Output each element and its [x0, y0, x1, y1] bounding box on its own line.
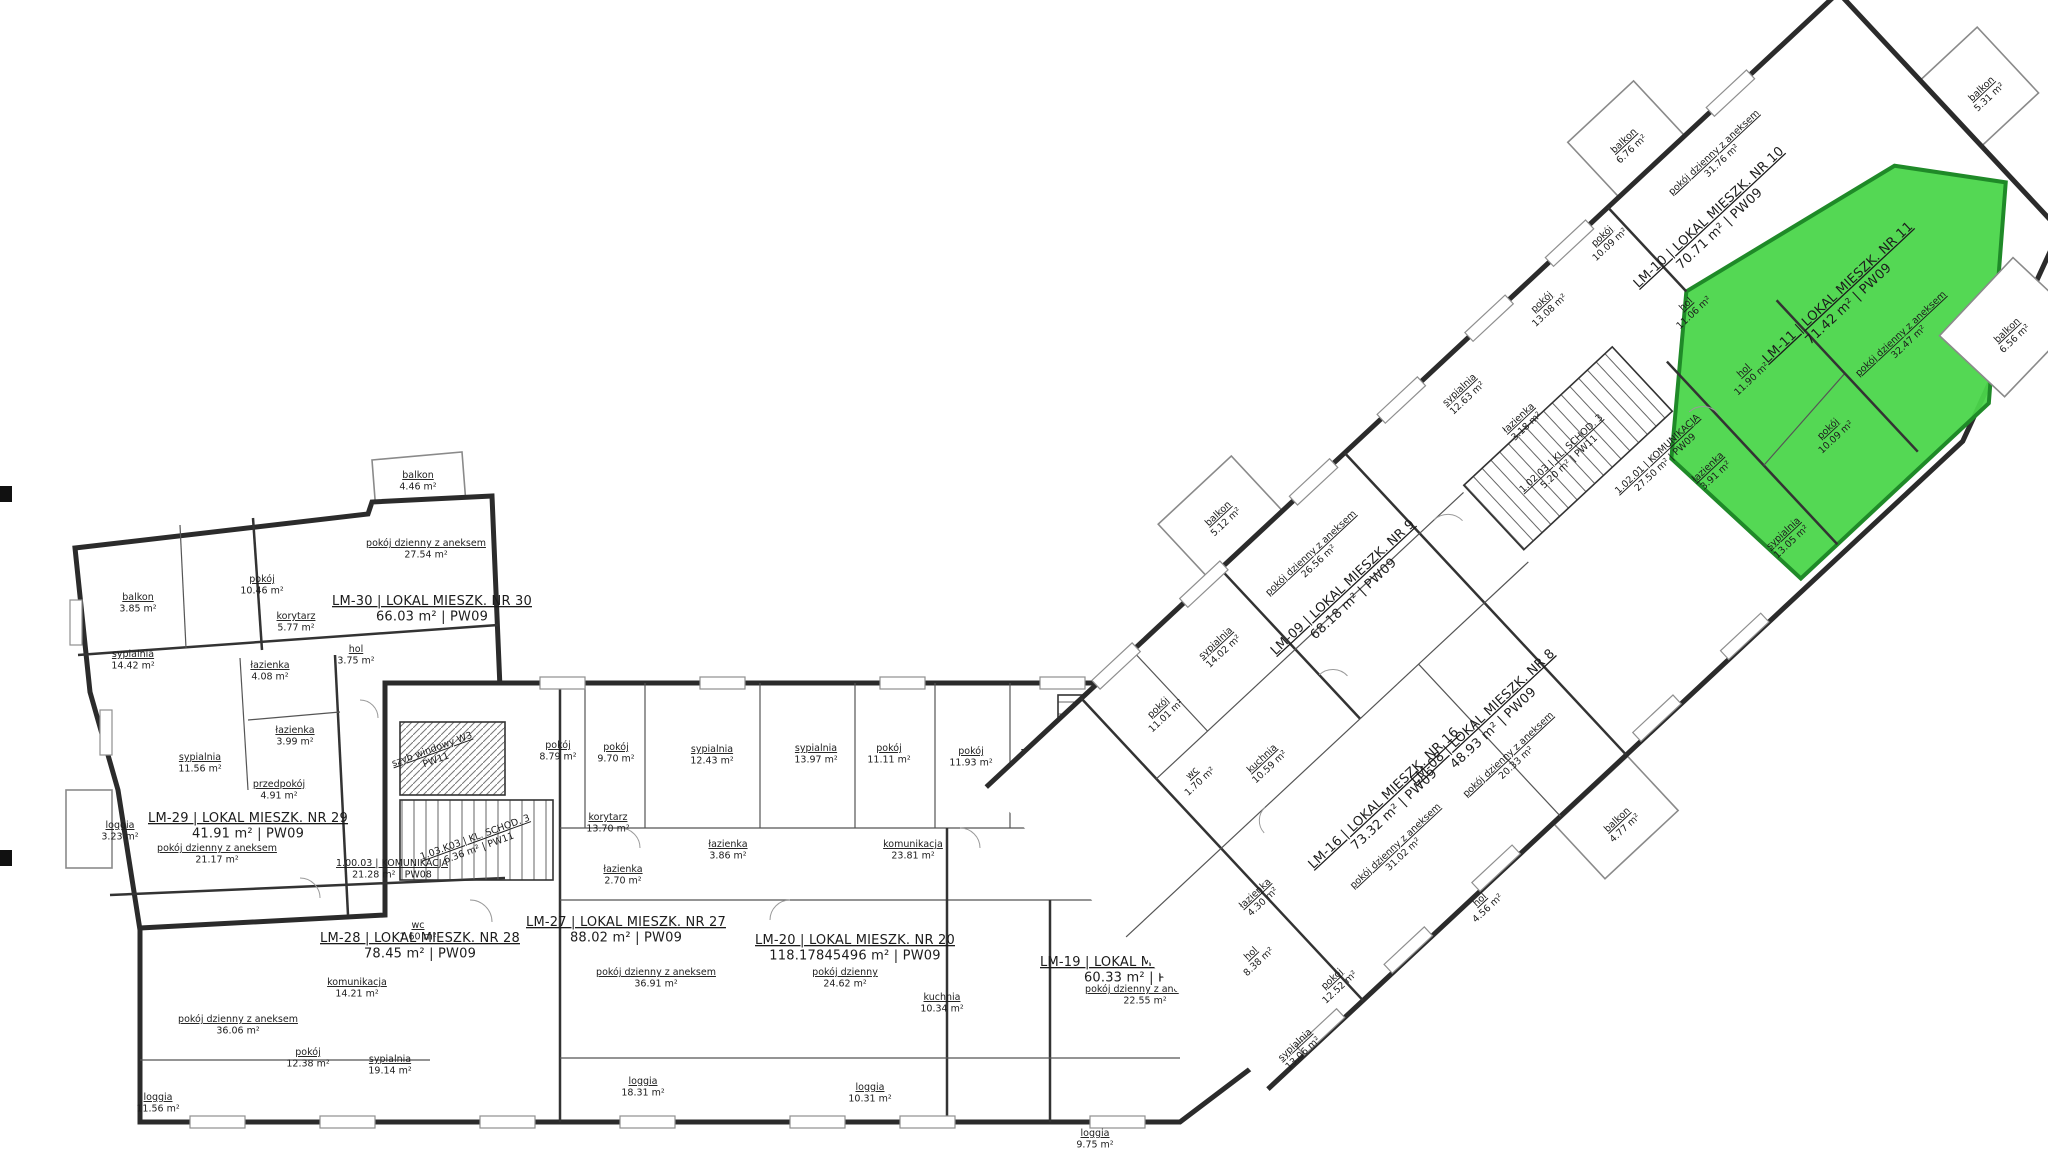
room-sypialnia-1156: sypialnia11.56 m² — [178, 752, 221, 774]
floor-plan-svg: LM-30 | LOKAL MIESZK. NR 3066.03 m² | PW… — [0, 0, 2048, 1152]
room-kuchnia-1034: kuchnia10.34 m² — [920, 992, 963, 1014]
room-sypialnia-1442: sypialnia14.42 m² — [111, 649, 154, 671]
room-balkon-385: balkon3.85 m² — [119, 592, 156, 614]
room-loggia-323: loggia3.23 m² — [101, 820, 138, 842]
room-loggia-975: loggia9.75 m² — [1076, 1128, 1113, 1150]
wing-outline — [986, 0, 2048, 1089]
room-sypialnia-1397: sypialnia13.97 m² — [794, 743, 837, 765]
section-marker-bottom — [0, 850, 12, 866]
room-lazienka-386: łazienka3.86 m² — [708, 839, 747, 861]
room-sypialnia-1914: sypialnia19.14 m² — [368, 1054, 411, 1076]
room-sypialnia-1243: sypialnia12.43 m² — [690, 744, 733, 766]
room-przedpokoj-491: przedpokój4.91 m² — [253, 779, 305, 801]
room-komunikacja-1421: komunikacja14.21 m² — [327, 977, 387, 999]
room-lazienka-408: łazienka4.08 m² — [250, 660, 289, 682]
section-marker-top — [0, 486, 12, 502]
room-korytarz-577: korytarz5.77 m² — [277, 611, 316, 633]
room-korytarz-1370: korytarz13.70 m² — [586, 812, 629, 834]
room-lazienka-270: łazienka2.70 m² — [603, 864, 642, 886]
room-balkon-446: balkon4.46 m² — [399, 470, 436, 492]
floor-plan-sheet: LM-30 | LOKAL MIESZK. NR 3066.03 m² | PW… — [0, 0, 2048, 1152]
room-komunikacja-2381: komunikacja23.81 m² — [883, 839, 943, 861]
core-label-komunikacja-1-00-03: 1.00.03 | KOMUNIKACJA21.28 m² | PW08 — [336, 858, 448, 880]
unit-label-lm20: LM-20 | LOKAL MIESZK. NR 20118.17845496 … — [755, 933, 955, 964]
room-lazienka-399: łazienka3.99 m² — [275, 725, 314, 747]
